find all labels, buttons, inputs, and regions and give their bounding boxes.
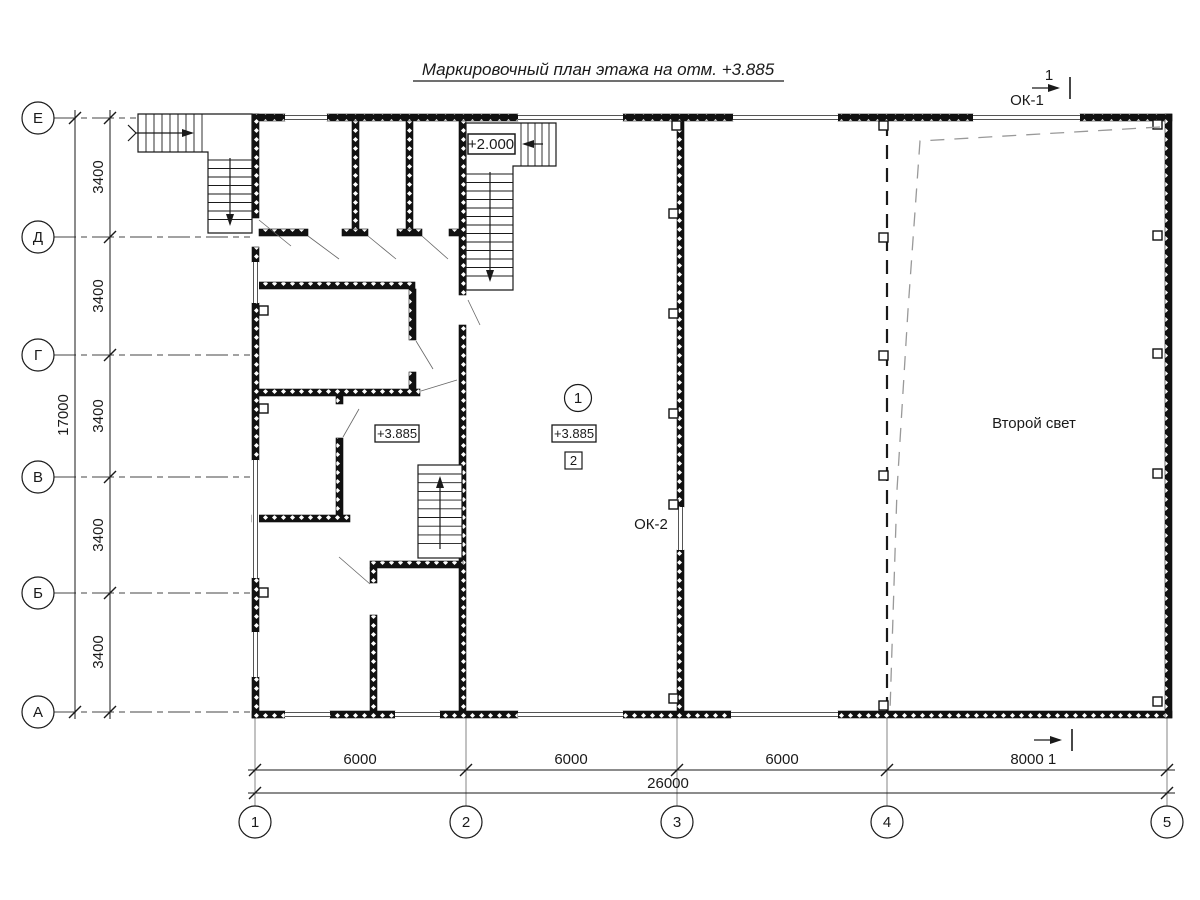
column-stub [1153, 349, 1162, 358]
wall-segment [440, 711, 518, 718]
wall-segment [252, 114, 259, 218]
window-opening [518, 711, 623, 718]
wall-segment [252, 515, 350, 522]
col-axis-label: 2 [462, 814, 470, 831]
door-leader-line [421, 380, 457, 391]
door-leader-line [368, 236, 396, 259]
drawing-title: Маркировочный план этажа на отм. +3.885 [413, 60, 784, 81]
dimension-value: 6000 [554, 751, 587, 768]
dimension-total-value: 26000 [647, 775, 689, 792]
window-opening [252, 632, 259, 677]
column-stub [259, 588, 268, 597]
second-light-label: Второй свет [992, 415, 1076, 432]
zone-mark-circle: 1 [565, 385, 592, 412]
column-stub [879, 233, 888, 242]
column-stub [669, 409, 678, 418]
column-stub [1153, 697, 1162, 706]
column-stub [669, 309, 678, 318]
wall-segment [838, 114, 973, 121]
wall-segment [370, 615, 377, 711]
window-opening [252, 460, 259, 578]
wall-segment [252, 677, 259, 718]
column-stub [672, 121, 681, 130]
door-leader-line [308, 236, 339, 259]
level-mark-3885-left: +3.885 [375, 425, 419, 442]
col-axis-label: 3 [673, 814, 681, 831]
door-leader-line [468, 300, 480, 325]
window-opening [733, 114, 838, 121]
zone-square-value: 2 [570, 453, 577, 468]
door-leader-line [422, 236, 448, 259]
column-stub [1153, 231, 1162, 240]
column-stub [879, 471, 888, 480]
column-stub [669, 694, 678, 703]
wall-segment [336, 438, 343, 515]
wall-segment [370, 568, 377, 583]
wall-segment [252, 247, 259, 262]
dimension-value: 8000 [1010, 751, 1043, 768]
level-mark-3885-mid: +3.885 [552, 425, 596, 442]
dimension-value: 3400 [90, 518, 107, 551]
row-axis-label: Г [34, 347, 42, 364]
dimension-total-value: 17000 [55, 394, 72, 436]
row-axis-label: В [33, 469, 43, 486]
zone-mark-square: 2 [565, 452, 582, 469]
dimension-value: 3400 [90, 160, 107, 193]
window-mark-ok2: ОК-2 [634, 516, 668, 533]
col-axis-label: 5 [1163, 814, 1171, 831]
col-axis-label: 4 [883, 814, 891, 831]
wall-segment [406, 121, 413, 229]
wall-segment [259, 389, 420, 396]
column-stub [879, 121, 888, 130]
column-stub [1153, 469, 1162, 478]
dimension-value: 3400 [90, 635, 107, 668]
wall-segment [623, 711, 731, 718]
section-mark-top-label: 1 [1045, 67, 1053, 84]
zone-circle-value: 1 [574, 390, 582, 407]
dimension-value: 3400 [90, 279, 107, 312]
row-axis-label: Д [33, 229, 43, 246]
level-mark-2000: +2.000 [468, 134, 515, 154]
stair-middle [418, 465, 462, 558]
stair-top-left [128, 114, 252, 233]
drawing-sheet: Маркировочный план этажа на отм. +3.885 … [0, 0, 1200, 900]
wall-segment [623, 114, 733, 121]
wall-segment [327, 114, 518, 121]
window-opening [285, 711, 330, 718]
wall-segment [252, 578, 259, 632]
col-axis-label: 1 [251, 814, 259, 831]
wall-segment [838, 711, 1172, 718]
row-axis-label: Б [33, 585, 43, 602]
wall-segment [677, 550, 684, 711]
row-axis-label: А [33, 704, 43, 721]
wall-segment [259, 229, 308, 236]
wall-segment [259, 282, 415, 289]
door-leader-line [339, 557, 370, 584]
door-leader-line [416, 341, 433, 369]
wall-segment [1165, 114, 1172, 718]
level-2000-value: +2.000 [468, 136, 514, 153]
wall-segment [409, 372, 416, 391]
window-opening [395, 711, 440, 718]
column-stub [669, 500, 678, 509]
axis-grid-group: ЕДГВБА12345 [22, 102, 1183, 838]
window-opening [285, 114, 327, 121]
entry-chevron-icon [128, 125, 136, 141]
window-opening [677, 507, 684, 550]
floor-plan-svg: Маркировочный план этажа на отм. +3.885 … [0, 0, 1200, 900]
section-mark-bottom-label: 1 [1048, 751, 1056, 768]
wall-segment [459, 121, 466, 295]
wall-segment [336, 396, 343, 404]
dimension-value: 6000 [343, 751, 376, 768]
wall-segment [409, 289, 416, 340]
wall-segment [342, 229, 368, 236]
column-stub [879, 701, 888, 710]
column-stub [259, 404, 268, 413]
door-leader-line [343, 409, 359, 437]
level-3885-mid-value: +3.885 [554, 426, 594, 441]
row-axis-label: Е [33, 110, 43, 127]
column-stub [669, 209, 678, 218]
column-stub [879, 351, 888, 360]
column-stub [259, 306, 268, 315]
wall-segment [330, 711, 395, 718]
wall-segment [370, 561, 463, 568]
window-opening [252, 262, 259, 303]
wall-segment [352, 121, 359, 229]
wall-segment [252, 303, 259, 460]
window-opening [731, 711, 838, 718]
window-opening [973, 114, 1080, 121]
level-3885-left-value: +3.885 [377, 426, 417, 441]
dimension-value: 3400 [90, 399, 107, 432]
dimension-value: 6000 [765, 751, 798, 768]
window-mark-ok1: ОК-1 [1010, 92, 1044, 109]
wall-segment [397, 229, 422, 236]
page-title: Маркировочный план этажа на отм. +3.885 [422, 60, 775, 79]
window-opening [518, 114, 623, 121]
